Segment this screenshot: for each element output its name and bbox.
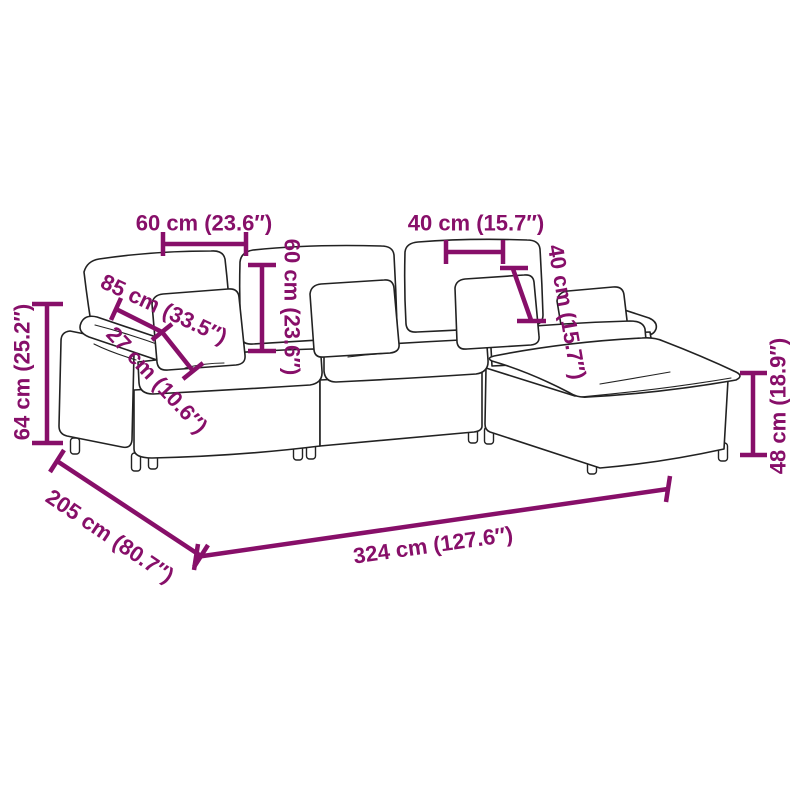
diagram-canvas: 60 cm (23.6″) 60 cm (23.6″) 40 cm (15.7″… <box>0 0 800 800</box>
dim-ottoman-height-label: 48 cm (18.9″) <box>766 338 791 475</box>
sofa-dimension-diagram: 60 cm (23.6″) 60 cm (23.6″) 40 cm (15.7″… <box>0 0 800 800</box>
sofa-leg <box>71 438 80 454</box>
dim-overall-width: 324 cm (127.6″) <box>194 476 670 570</box>
dim-overall-width-label: 324 cm (127.6″) <box>352 521 515 568</box>
dim-ottoman-height: 48 cm (18.9″) <box>740 338 791 475</box>
dim-backrest-height-label: 60 cm (23.6″) <box>280 239 305 376</box>
dim-ottoman-height-line <box>740 373 767 455</box>
dim-overall-depth-label: 205 cm (80.7″) <box>41 484 178 588</box>
dim-back-cushion-width: 60 cm (23.6″) <box>136 211 273 257</box>
dim-overall-depth: 205 cm (80.7″) <box>41 450 208 588</box>
dim-back-cushion-width-label: 60 cm (23.6″) <box>136 211 273 236</box>
throw-pillow-middle <box>310 280 399 357</box>
dim-overall-height: 64 cm (25.2″) <box>10 304 64 443</box>
dim-overall-height-label: 64 cm (25.2″) <box>10 304 35 441</box>
dim-pillow-width-label: 40 cm (15.7″) <box>408 211 545 236</box>
middle-module-base <box>320 372 482 446</box>
sofa-illustration <box>59 239 740 474</box>
